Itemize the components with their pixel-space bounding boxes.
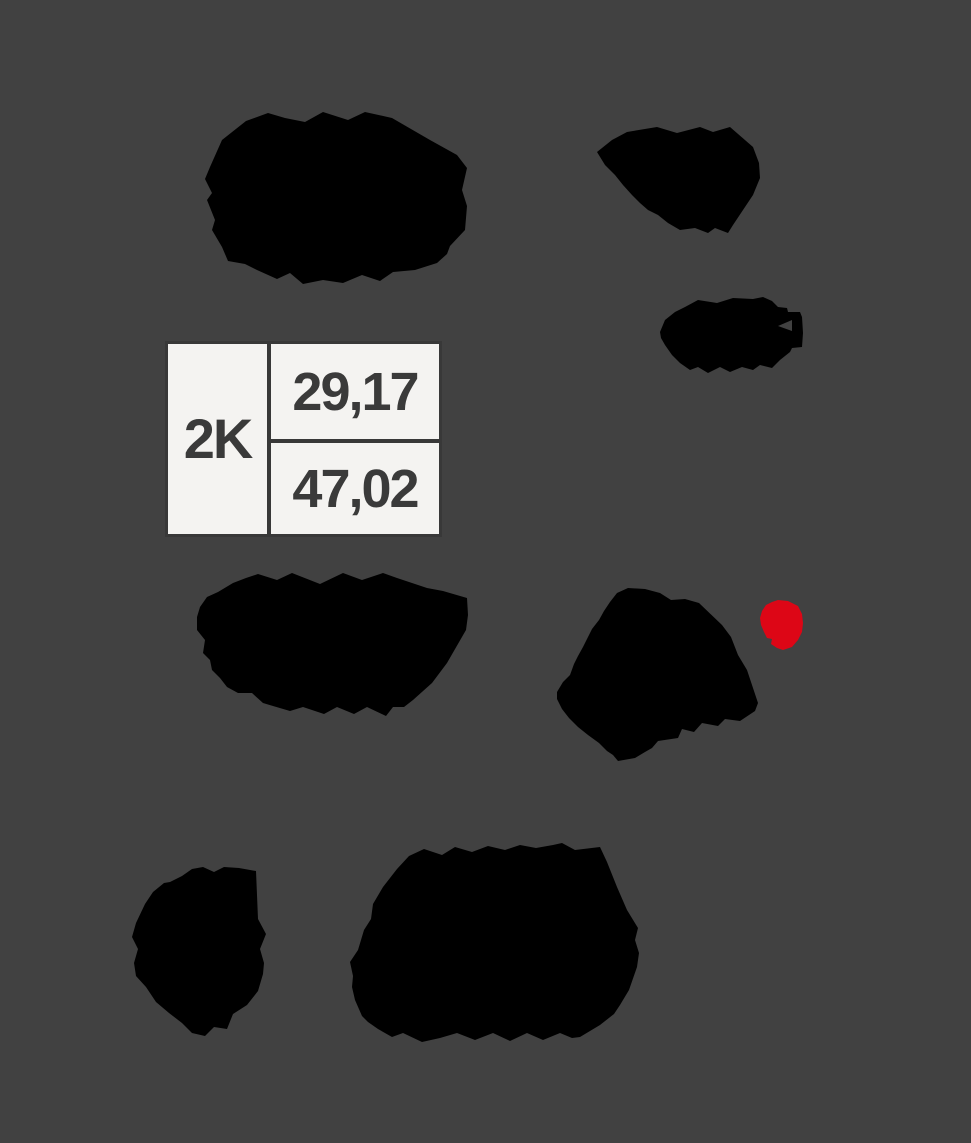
- zone-info-table: 2K 29,17 47,02: [165, 341, 442, 537]
- blackout-blob-bottom-left: [132, 867, 266, 1036]
- silhouette-layer: [0, 0, 971, 1143]
- zone-upper-value: 29,17: [271, 344, 439, 439]
- zone-label: 2K: [168, 344, 267, 534]
- blackout-blob-bottom-center: [350, 843, 639, 1042]
- map-canvas: 2K 29,17 47,02: [0, 0, 971, 1143]
- blackout-blob-right-middle: [660, 297, 803, 373]
- zone-lower-value: 47,02: [271, 443, 439, 534]
- blackout-blob-top-right: [597, 127, 760, 233]
- red-dot-marker: [760, 600, 803, 650]
- blackout-blob-top-left: [205, 112, 467, 284]
- blackout-blob-center-right: [557, 588, 758, 761]
- blackout-blob-center-left: [197, 573, 468, 716]
